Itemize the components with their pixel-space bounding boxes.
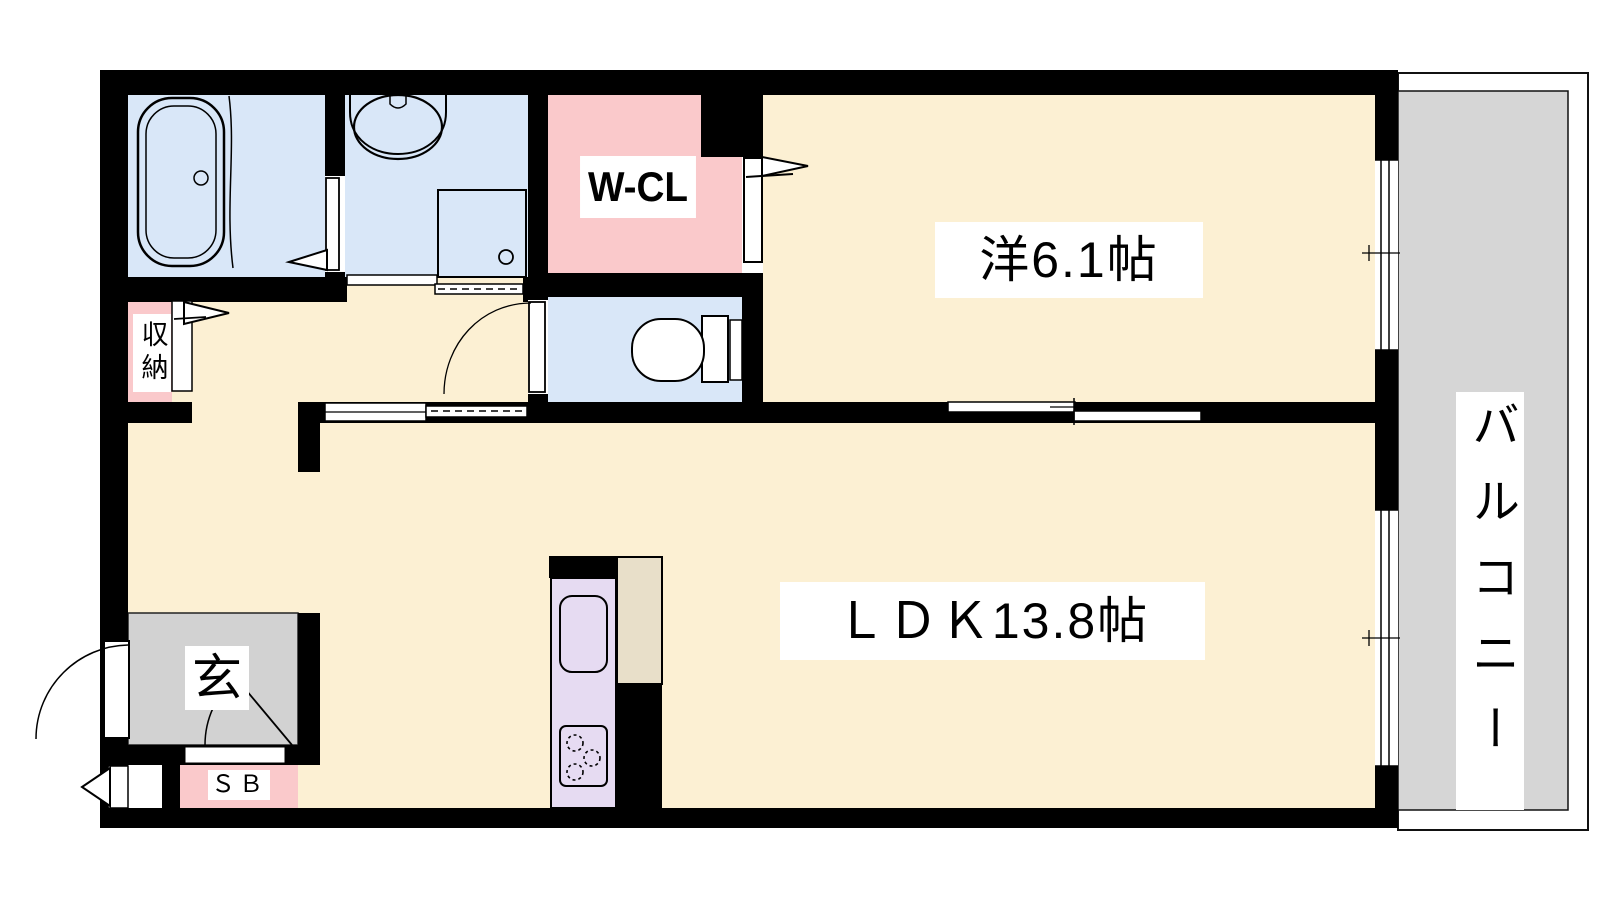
wall-under-storage: [128, 402, 192, 423]
wall-stub-hall: [298, 402, 320, 472]
entrance-door: [36, 641, 130, 739]
wall-washroom-wcl: [528, 93, 548, 277]
toilet: [632, 316, 742, 382]
label-ldk: ＬＤＫ13.8帖: [780, 582, 1205, 660]
wall-kitchen-stub: [549, 556, 616, 578]
label-walk-in-closet: W-CL: [580, 156, 696, 218]
wall-wcl-toilet: [548, 273, 763, 297]
outer-wall-bottom: [100, 808, 1398, 828]
refrigerator-space: [617, 557, 662, 684]
bathroom-floor: [128, 93, 325, 277]
wall-genkan-right: [298, 613, 320, 765]
washroom-floor: [345, 93, 528, 277]
label-entrance: 玄: [185, 646, 249, 710]
wall-kitchen-duct: [617, 684, 662, 808]
wall-wcl-notch: [701, 93, 763, 157]
wall-porch-stub: [162, 765, 180, 808]
entrance-arrow-icon: [82, 768, 110, 806]
entrance-porch: [128, 765, 162, 808]
wall-under-bathroom: [100, 277, 347, 302]
label-storage: 収納: [133, 314, 171, 392]
label-balcony: バルコニー: [1456, 392, 1524, 810]
label-western-room: 洋6.1帖: [935, 222, 1203, 298]
outer-wall-top: [100, 70, 1398, 95]
floor-plan-drawing: [0, 0, 1600, 900]
wall-western-left: [742, 297, 763, 402]
floor-plan: 洋6.1帖 ＬＤＫ13.8帖 W-CL バルコニー 収納 玄 ＳＢ: [0, 0, 1600, 900]
label-shoe-box: ＳＢ: [208, 770, 270, 800]
